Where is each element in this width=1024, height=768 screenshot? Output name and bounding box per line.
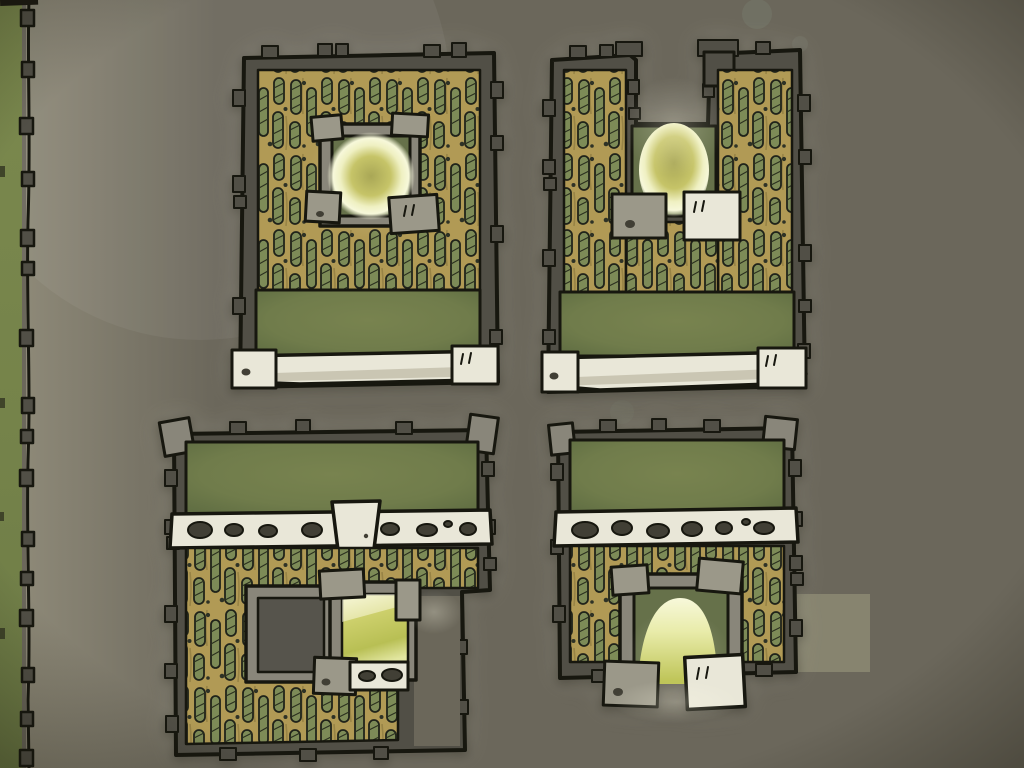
map-canvas: [0, 0, 1024, 768]
game-viewport: [0, 0, 1024, 768]
vignette: [0, 0, 1024, 768]
